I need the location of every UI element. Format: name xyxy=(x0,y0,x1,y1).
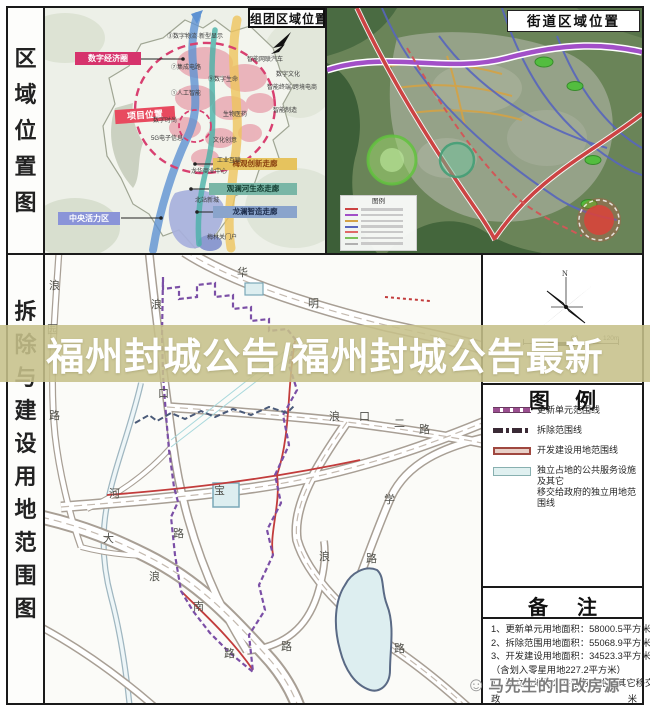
road-label-char: 大 xyxy=(103,534,114,545)
tiny-map-label: 数字文化 xyxy=(276,72,300,79)
legend-swatch xyxy=(493,447,531,455)
notes-title-underline xyxy=(483,617,642,619)
sidebar-char: 建 xyxy=(14,400,36,422)
sidebar-char: 图 xyxy=(14,598,36,620)
tiny-map-label: 梅林关门户 xyxy=(207,235,237,242)
sidebar-char: 位 xyxy=(14,120,36,142)
road-label-char: 路 xyxy=(173,529,184,540)
street-area-satellite-map: 街道区域位置 图例 xyxy=(327,8,642,253)
street-map-mini-legend: 图例 xyxy=(340,195,417,251)
legend-label-line1: 开发建设用地范围线 xyxy=(537,445,618,456)
legend-label-line1: 拆除范围线 xyxy=(537,425,582,436)
tiny-map-label: 工业互联 xyxy=(217,158,241,165)
sidebar-char: 图 xyxy=(14,192,36,214)
sidebar-top-chars: 区域位置图 xyxy=(8,8,43,293)
notes-title: 备 注 xyxy=(483,591,642,620)
smiley-face-icon: ☺ xyxy=(466,674,486,696)
label-corridor-ecology: 观澜河生态走廊 xyxy=(209,183,297,195)
region-map-corner-title: 组团区域位置 xyxy=(248,8,325,28)
road-label-char: 路 xyxy=(419,425,430,436)
north-letter: N xyxy=(562,269,568,278)
legend-item: 拆除范围线 xyxy=(493,425,638,436)
legend-swatch xyxy=(493,407,531,413)
mini-legend-title: 图例 xyxy=(345,198,412,205)
watermark-text: 马先生的旧改房源 xyxy=(488,674,620,696)
legend-swatch xyxy=(493,428,531,433)
planning-poster: 区域位置图 拆除与建设用地范围图 xyxy=(0,0,650,711)
notes-top-divider xyxy=(483,586,642,588)
sidebar-char: 围 xyxy=(14,565,36,587)
sidebar-char: 地 xyxy=(14,499,36,521)
sidebar-char: 设 xyxy=(14,433,36,455)
note-line: 3、开发建设用地面积：34523.3平方米 xyxy=(491,650,637,664)
sidebar-char: 用 xyxy=(14,466,36,488)
tiny-map-label: 文化创意 xyxy=(213,138,237,145)
road-label-char: 口 xyxy=(158,389,169,400)
road-label-char: 浪 xyxy=(149,572,160,583)
road-label-char: 路 xyxy=(366,554,377,565)
legend-label-line2: 移交给政府的独立用地范围线 xyxy=(537,487,638,509)
sidebar-title-demolition-map: 拆除与建设用地范围图 xyxy=(8,255,45,703)
sidebar-char: 范 xyxy=(14,532,36,554)
road-label-char: 路 xyxy=(281,642,292,653)
tiny-map-label: 生物医药 xyxy=(223,112,247,119)
road-label-char: 浪 xyxy=(319,552,330,563)
region-location-map: 数字经济圈 项目位置 中央活力区 梅观创新走廊 观澜河生态走廊 龙澜智造走廊 组… xyxy=(45,8,325,253)
road-label-char: 宝 xyxy=(214,486,225,497)
plan-map-side-panel: N 60120m 图 例 更新单元范围线 xyxy=(483,255,642,703)
plan-map-drawing xyxy=(45,255,481,703)
road-label-char: 二 xyxy=(394,419,405,430)
road-label-char: 口 xyxy=(359,412,370,423)
road-label-char: 河 xyxy=(109,489,120,500)
label-corridor-manufacture: 龙澜智造走廊 xyxy=(213,206,297,218)
road-label-char: 学 xyxy=(384,495,395,506)
road-label-char: 南 xyxy=(193,602,204,613)
road-label-char: 路 xyxy=(224,649,235,660)
tiny-map-label: 智能网联汽车 xyxy=(247,57,283,64)
street-map-corner-title: 街道区域位置 xyxy=(507,10,640,32)
demolition-construction-plan-map: 浪园路华明浪口路浪口二路河宝大浪南路学路浪路路 xyxy=(45,255,481,703)
legend-item: 独立占地的公共服务设施及其它 移交给政府的独立用地范围线 xyxy=(493,465,638,509)
note-line: 1、更新单元用地面积：58000.5平方米 xyxy=(491,623,637,637)
label-central-vitality-zone: 中央活力区 xyxy=(58,212,120,225)
sidebar-char: 区 xyxy=(14,48,36,70)
sidebar-char: 拆 xyxy=(14,301,36,323)
road-label-char: 浪 xyxy=(49,281,60,292)
headline-text: 福州封城公告/福州封城公告最新 xyxy=(46,326,604,381)
tiny-map-label: 北站新城 xyxy=(195,198,219,205)
road-label-char: 路 xyxy=(49,411,60,422)
sidebar-title-region-map: 区域位置图 xyxy=(8,8,45,253)
road-label-char: 浪 xyxy=(151,300,162,311)
legend-item: 开发建设用地范围线 xyxy=(493,445,638,456)
headline-banner: 福州封城公告/福州封城公告最新 xyxy=(0,325,650,382)
sidebar-char: 置 xyxy=(14,156,36,178)
road-label-char: 明 xyxy=(308,299,319,310)
legend-items: 更新单元范围线 拆除范围线 开发建设用地范围线 独立占地的公共服务设施 xyxy=(493,405,638,518)
legend-label-line1: 更新单元范围线 xyxy=(537,405,600,416)
tiny-map-label: 智能终端·跨境电商 xyxy=(267,85,317,92)
road-label-char: 路 xyxy=(394,644,405,655)
sidebar-bottom-chars: 拆除与建设用地范围图 xyxy=(8,255,43,711)
road-label-char: 华 xyxy=(237,268,248,279)
label-digital-economy-circle: 数字经济圈 xyxy=(75,52,141,65)
watermark: ☺ 马先生的旧改房源 xyxy=(466,668,646,702)
note-line: 2、拆除范围用地面积：55068.9平方米 xyxy=(491,637,637,651)
tiny-map-label: ①人工智能 xyxy=(171,91,201,98)
tiny-map-label: 龙华商业中心 xyxy=(191,169,227,176)
legend-swatch xyxy=(493,467,531,476)
road-label-char: 浪 xyxy=(329,412,340,423)
sidebar-char: 域 xyxy=(14,84,36,106)
tiny-map-label: ⑨数字生命 xyxy=(208,77,238,84)
legend-item: 更新单元范围线 xyxy=(493,405,638,416)
tiny-map-label: ⑦集成电路 xyxy=(171,65,201,72)
legend-label-line1: 独立占地的公共服务设施及其它 xyxy=(537,465,638,487)
tiny-map-label: 5G电子信息 xyxy=(151,136,183,143)
tiny-map-label: 智能制造 xyxy=(273,108,297,115)
tiny-map-label: ③数字物流·新型显示 xyxy=(167,34,223,41)
tiny-map-label: 数字时尚 xyxy=(153,118,177,125)
